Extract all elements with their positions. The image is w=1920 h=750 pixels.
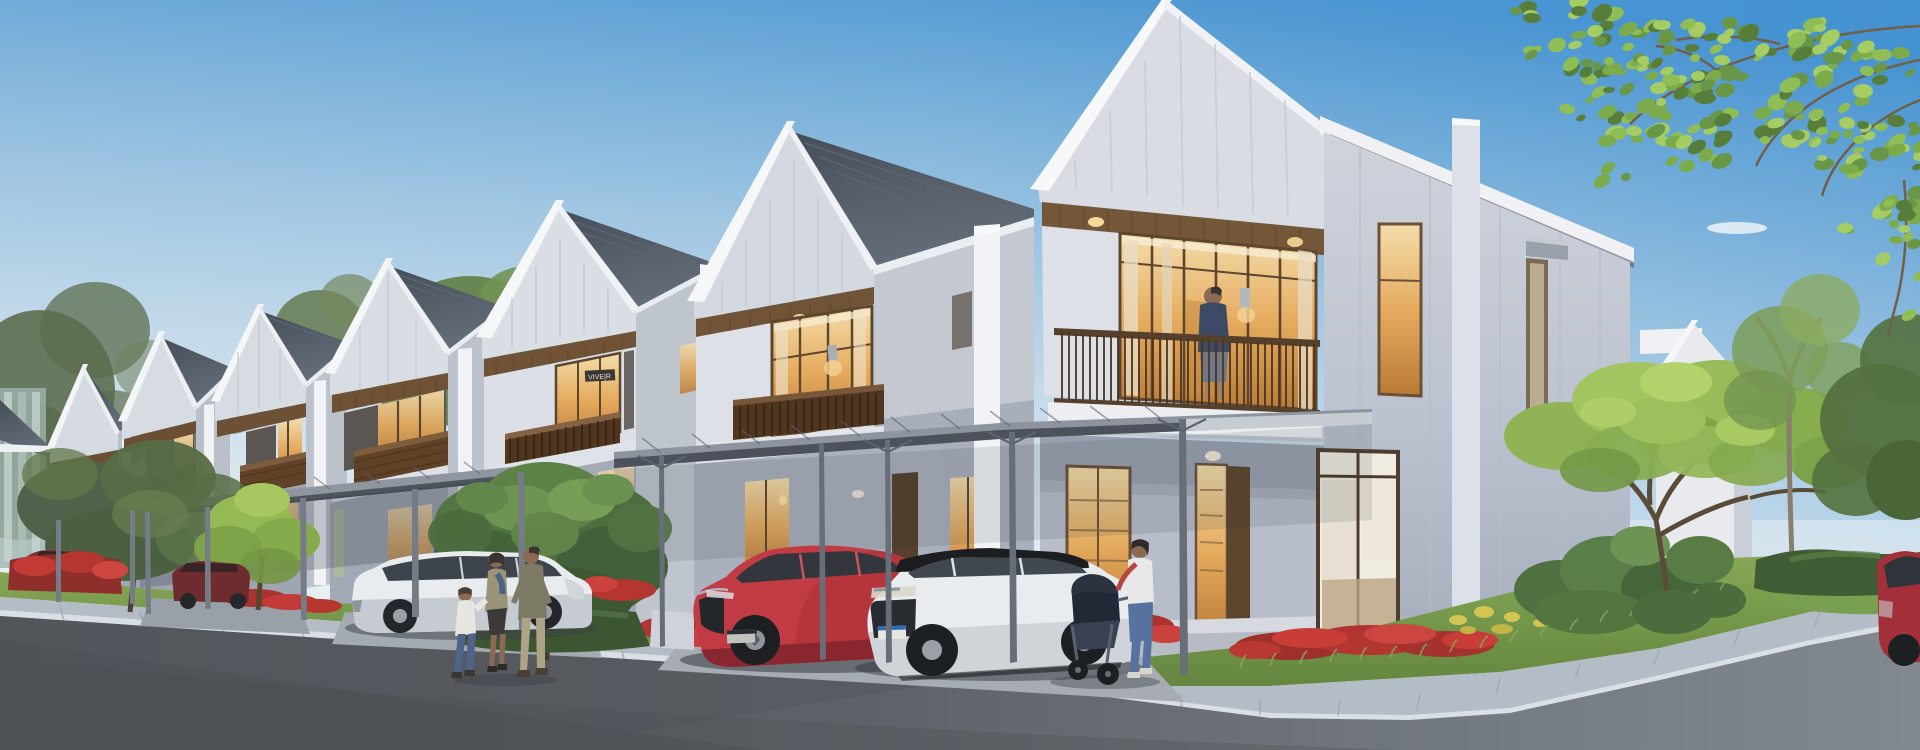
svg-text:VIVE|R: VIVE|R xyxy=(588,373,611,381)
